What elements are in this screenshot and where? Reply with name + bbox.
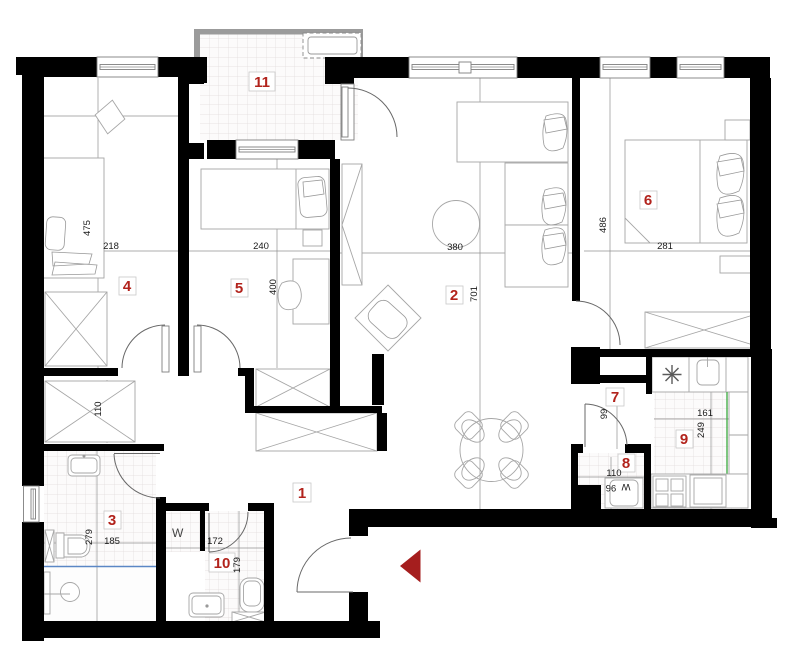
svg-text:486: 486 [598, 217, 609, 233]
svg-text:W: W [621, 481, 630, 492]
svg-text:W: W [172, 526, 184, 540]
svg-text:400: 400 [268, 279, 279, 295]
svg-text:11: 11 [254, 74, 270, 91]
svg-text:161: 161 [697, 408, 713, 419]
svg-text:218: 218 [103, 241, 119, 252]
svg-text:110: 110 [93, 401, 104, 416]
svg-text:99: 99 [599, 409, 610, 420]
svg-text:380: 380 [447, 242, 463, 253]
svg-text:172: 172 [207, 536, 223, 547]
svg-text:2: 2 [450, 287, 458, 304]
svg-text:701: 701 [469, 286, 480, 302]
svg-text:7: 7 [611, 389, 619, 406]
svg-text:1: 1 [298, 485, 306, 502]
svg-text:110: 110 [606, 468, 621, 479]
svg-text:8: 8 [622, 455, 630, 472]
svg-text:10: 10 [214, 555, 231, 572]
svg-text:5: 5 [235, 280, 243, 297]
svg-text:9: 9 [680, 431, 688, 448]
svg-text:240: 240 [253, 241, 269, 252]
svg-text:179: 179 [232, 557, 243, 573]
svg-text:185: 185 [104, 536, 120, 547]
svg-text:6: 6 [644, 192, 652, 209]
svg-text:475: 475 [82, 220, 93, 236]
svg-text:4: 4 [123, 278, 132, 295]
svg-text:96: 96 [606, 482, 617, 493]
svg-text:3: 3 [108, 512, 116, 529]
svg-text:281: 281 [657, 241, 673, 252]
svg-text:279: 279 [84, 529, 95, 545]
svg-text:249: 249 [696, 422, 707, 438]
